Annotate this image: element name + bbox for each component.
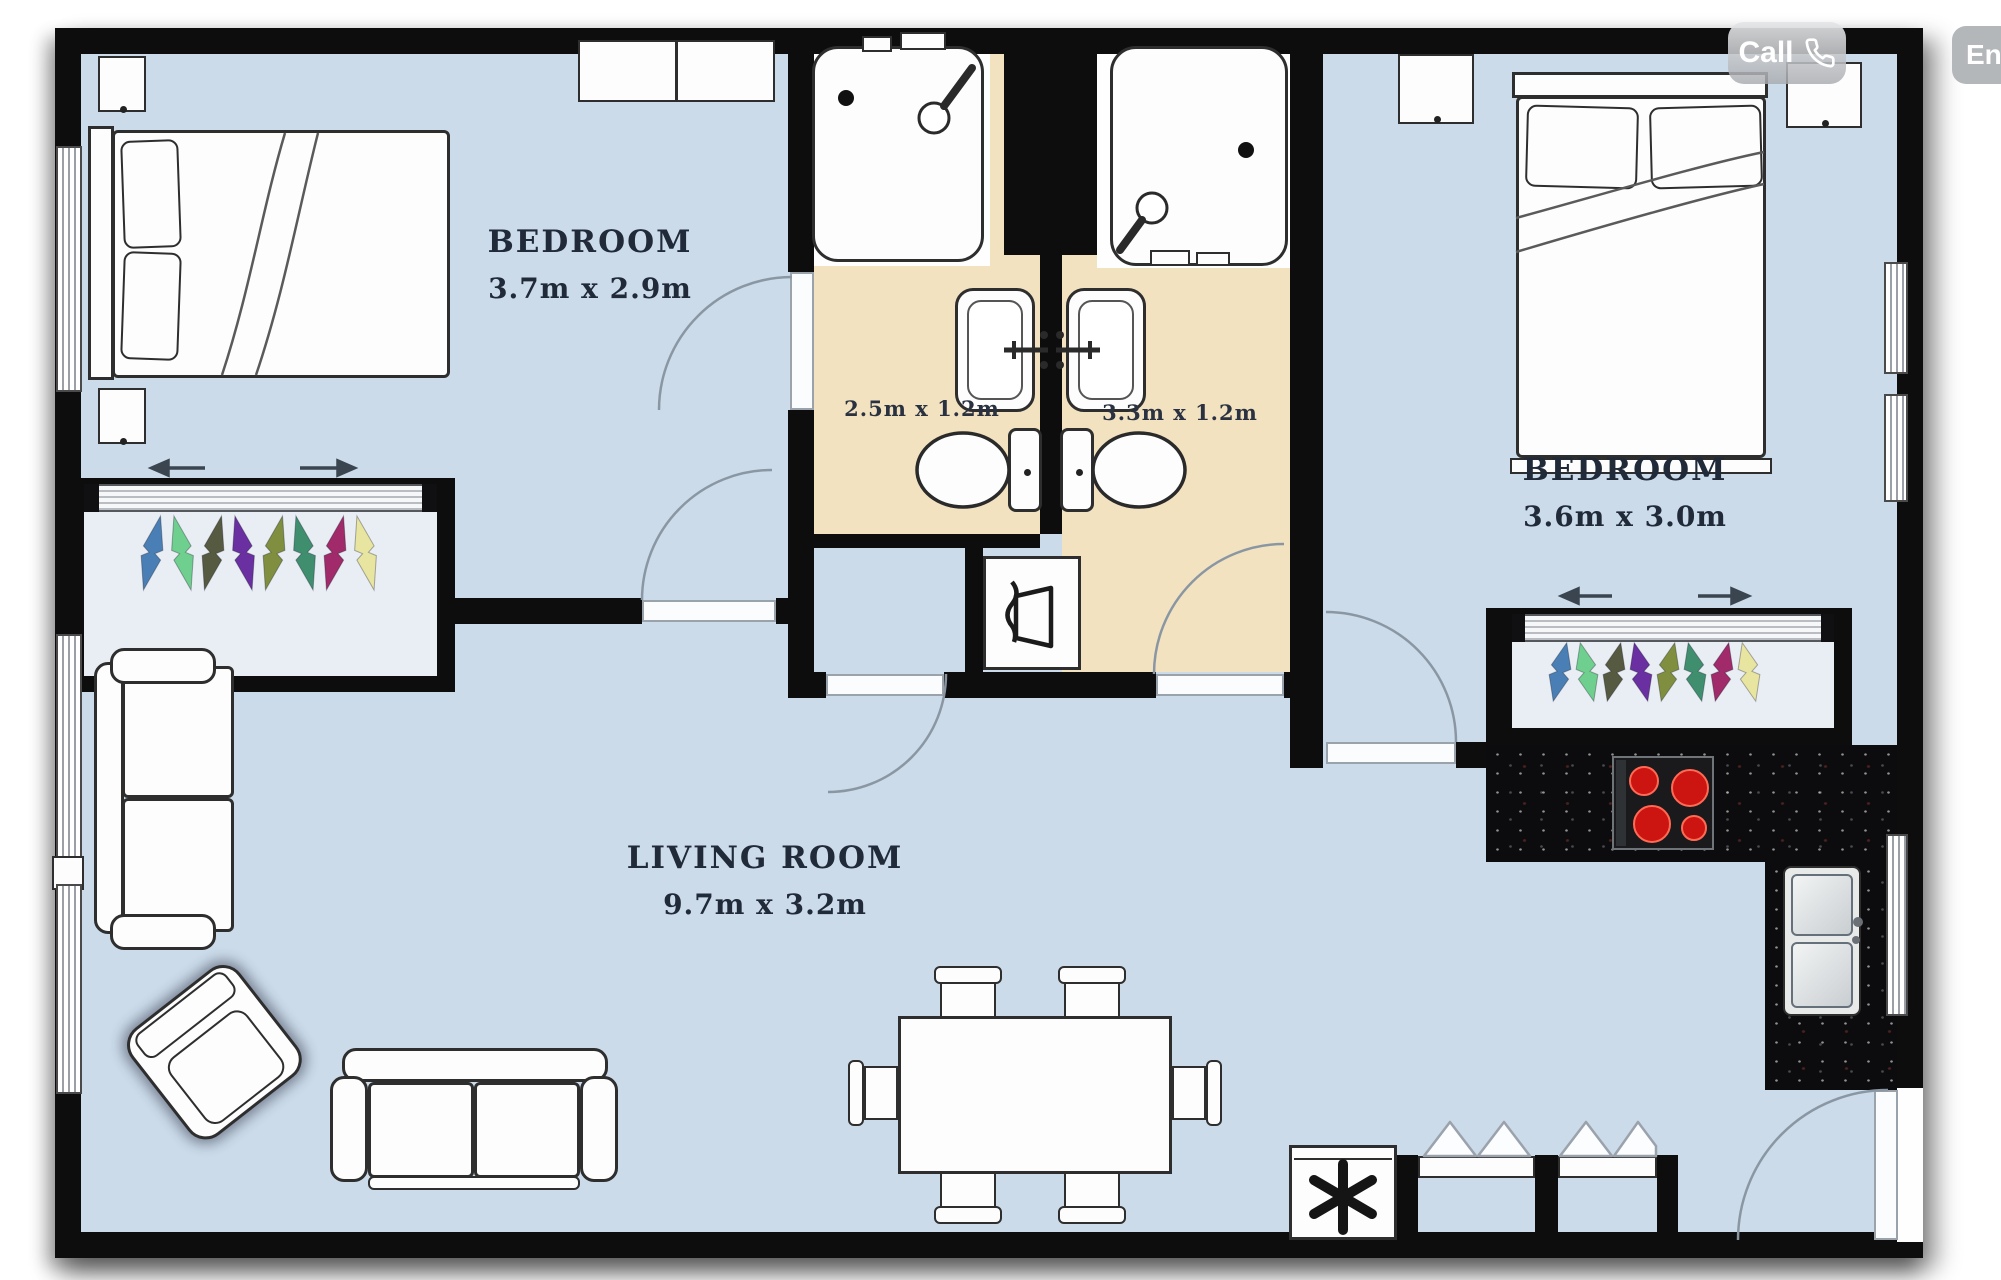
pillow (120, 251, 182, 361)
pillow (1649, 105, 1763, 190)
room-dimensions: 3.7m x 2.9m (420, 272, 760, 305)
niche-stub (1397, 1155, 1418, 1232)
dining-table (898, 1016, 1172, 1174)
toilet-cistern (1060, 428, 1094, 512)
nightstand (98, 388, 146, 444)
wardrobe-right-interior (1512, 642, 1834, 728)
wall (788, 410, 814, 672)
niche-stub (1535, 1155, 1558, 1232)
room-name: LIVING ROOM (590, 840, 940, 876)
bed-headboard (88, 126, 114, 380)
sofa-back (342, 1048, 608, 1082)
bathroom-left-label: 2.5m x 1.2m (827, 396, 1017, 421)
chair-back (1206, 1060, 1222, 1126)
door-leaf (1874, 1090, 1898, 1240)
wall (440, 598, 642, 624)
sofa-seat (474, 1082, 580, 1178)
wardrobe-right-sliding-rail (1512, 614, 1834, 642)
rail-cap (1821, 614, 1834, 642)
door-leaf (1326, 742, 1456, 764)
shower-tray (1110, 46, 1288, 266)
niche-shelf (1418, 1156, 1535, 1178)
duct-block (1004, 54, 1097, 255)
chair-seat (1064, 1172, 1120, 1208)
sofa-seat (122, 666, 234, 798)
wall (1040, 255, 1062, 534)
bathroom-right-label: 3.3m x 1.2m (1085, 400, 1275, 425)
shower-bracket (862, 36, 892, 52)
window (1886, 834, 1908, 1016)
window (56, 634, 82, 862)
nightstand (1398, 54, 1474, 124)
wall (814, 534, 1040, 548)
wall (788, 672, 826, 698)
wall (788, 54, 814, 272)
door-leaf (1156, 674, 1284, 696)
sofa-armrest (330, 1076, 368, 1182)
wardrobe-left-sliding-rail (84, 484, 437, 512)
sofa-armrest (110, 648, 216, 684)
sofa-armrest (580, 1076, 618, 1182)
rail-cap (84, 484, 99, 512)
rail-cap (422, 484, 437, 512)
phone-icon (1804, 37, 1836, 69)
enquire-button-label: En (1966, 39, 2001, 71)
chair-seat (1064, 982, 1120, 1018)
chair-seat (864, 1066, 898, 1120)
shower-bracket (900, 32, 946, 50)
chair-seat (1172, 1066, 1206, 1120)
sofa-seat (122, 798, 234, 932)
floorplan-page: BEDROOM 3.7m x 2.9m BEDROOM 3.6m x 3.0m … (0, 0, 2001, 1280)
cabinet (578, 40, 775, 102)
shower-bracket (1196, 252, 1230, 266)
room-dimensions: 3.6m x 3.0m (1450, 500, 1800, 533)
door-leaf (642, 600, 776, 622)
wall (1456, 742, 1490, 768)
wall (944, 672, 1156, 698)
enquire-button[interactable]: En (1952, 26, 2001, 84)
wall (965, 548, 983, 672)
rail-cap (1512, 614, 1525, 642)
window (1884, 262, 1908, 374)
utility-box-lid (1294, 1158, 1392, 1160)
window (56, 146, 82, 392)
chair-seat (940, 982, 996, 1018)
door-leaf (826, 674, 944, 696)
call-button-label: Call (1738, 36, 1793, 70)
pillow (120, 139, 182, 249)
chair-back (848, 1060, 864, 1126)
sink-basin (1791, 874, 1853, 936)
sofa-armrest (110, 914, 216, 950)
window (56, 884, 82, 1094)
hall-cabinet (983, 556, 1081, 670)
sofa-seat (368, 1082, 474, 1178)
niche-shelf (1558, 1156, 1657, 1178)
room-name: BEDROOM (420, 224, 760, 260)
stove (1612, 756, 1714, 850)
wall (1290, 54, 1323, 768)
sofa-back (94, 662, 124, 934)
washbasin-bowl (1078, 300, 1134, 400)
door-opening (1897, 1088, 1923, 1242)
toilet-cistern (1008, 428, 1042, 512)
chair-back (1058, 1206, 1126, 1224)
sink-basin (1791, 942, 1853, 1008)
window (1884, 394, 1908, 502)
washbasin-bowl (967, 300, 1023, 400)
room-name: BEDROOM (1450, 452, 1800, 488)
call-button[interactable]: Call (1728, 22, 1846, 84)
pillow (1525, 105, 1639, 190)
room-dimensions: 9.7m x 3.2m (590, 888, 940, 921)
bedroom-right-label: BEDROOM 3.6m x 3.0m (1450, 452, 1800, 533)
sofa-front-edge (368, 1176, 580, 1190)
shower-tray (812, 46, 984, 262)
nightstand (98, 56, 146, 112)
door-leaf (790, 272, 814, 410)
shower-bracket (1150, 250, 1190, 266)
niche-stub (1657, 1155, 1678, 1232)
living-room-label: LIVING ROOM 9.7m x 3.2m (590, 840, 940, 921)
wall (776, 598, 814, 624)
chair-back (934, 1206, 1002, 1224)
chair-seat (940, 1172, 996, 1208)
bedroom-left-label: BEDROOM 3.7m x 2.9m (420, 224, 760, 305)
